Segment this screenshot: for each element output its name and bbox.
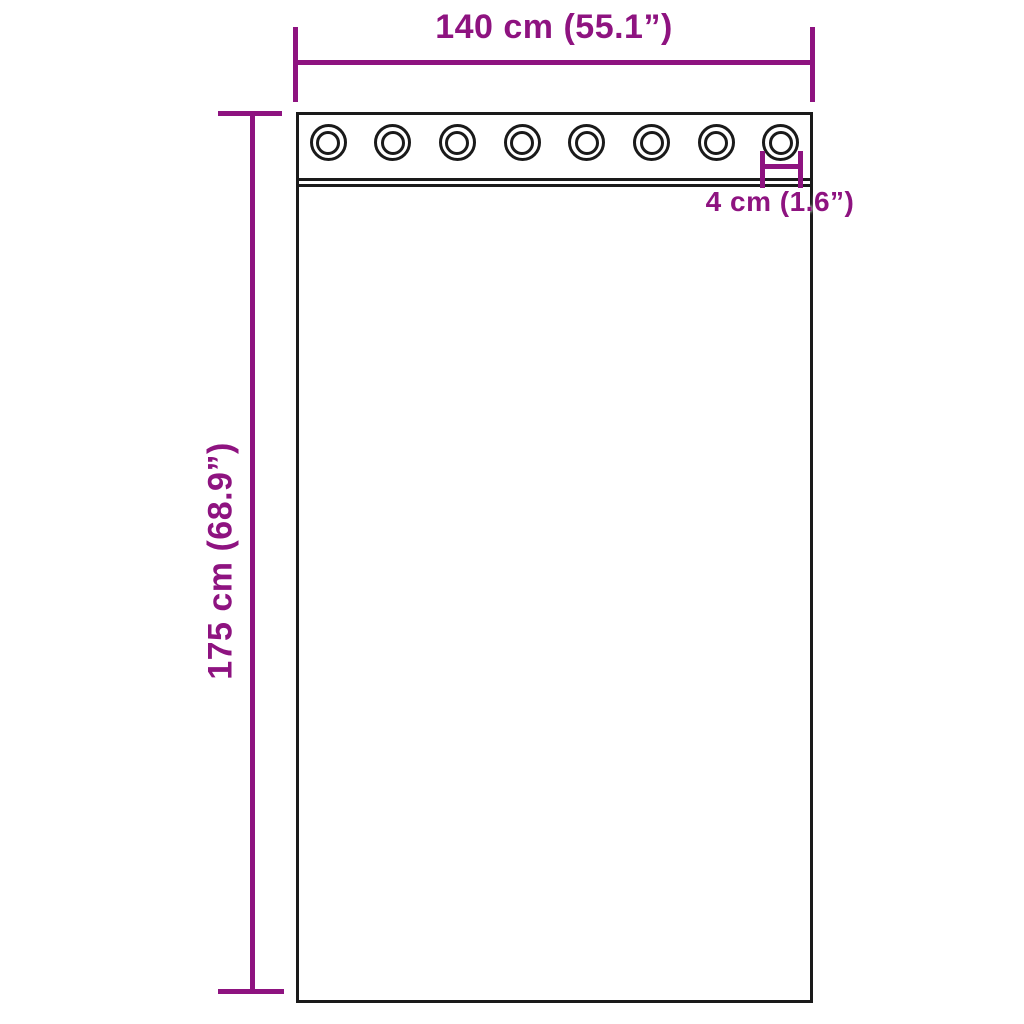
grommet-inner-ring (316, 131, 340, 155)
width-dimension-label: 140 cm (55.1”) (295, 6, 813, 48)
header-seam-line-top (296, 178, 813, 181)
grommet-icon (633, 124, 670, 161)
grommet-dimension-right-tick (798, 151, 803, 188)
grommet-inner-ring (575, 131, 599, 155)
curtain-dimension-diagram: 140 cm (55.1”) 175 cm (68.9”) 4 cm (1.6”… (0, 0, 1024, 1024)
grommet-icon (504, 124, 541, 161)
grommet-icon (698, 124, 735, 161)
height-dimension-bottom-tick (218, 989, 284, 994)
grommet-inner-ring (381, 131, 405, 155)
grommet-inner-ring (445, 131, 469, 155)
curtain-panel-outline (296, 112, 813, 1003)
grommet-dimension-line (760, 164, 803, 169)
height-dimension-line (250, 113, 255, 991)
grommet-icon (439, 124, 476, 161)
grommet-inner-ring (640, 131, 664, 155)
grommet-icon (310, 124, 347, 161)
height-dimension-label: 175 cm (68.9”) (202, 442, 241, 680)
height-dimension-top-tick (218, 111, 282, 116)
width-dimension-left-tick (293, 27, 298, 102)
grommet-icon (374, 124, 411, 161)
grommet-inner-ring (769, 131, 793, 155)
width-dimension-line (295, 60, 813, 65)
grommet-inner-ring (704, 131, 728, 155)
grommet-inner-ring (510, 131, 534, 155)
grommet-dimension-left-tick (760, 151, 765, 188)
grommet-diameter-label: 4 cm (1.6”) (706, 186, 855, 218)
width-dimension-right-tick (810, 27, 815, 102)
